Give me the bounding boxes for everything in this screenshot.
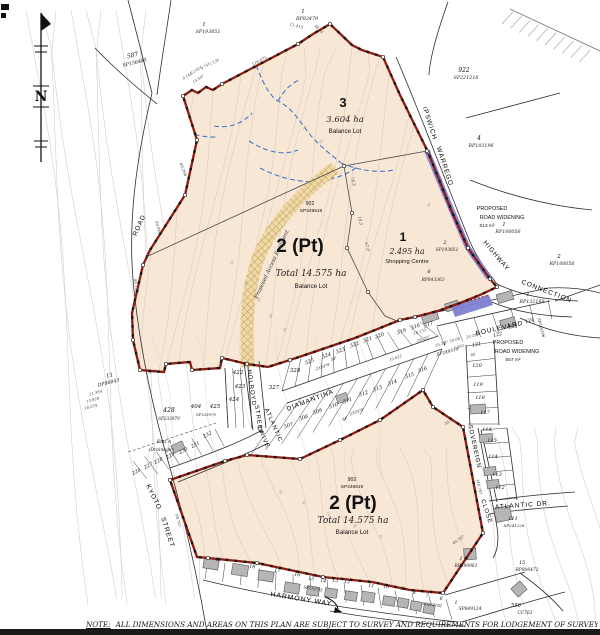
street-atlantic-dr: ATLANTIC DR. [495,500,551,511]
survey-mark [190,368,193,371]
map-label: 7 [425,593,430,599]
map-label: 1 [459,556,462,562]
lot-tick [467,375,496,377]
map-label: 49 [379,534,384,539]
map-label: SP233979 [196,412,216,417]
map-label: 122 [492,331,503,339]
lot-tick [223,563,225,582]
map-label: 1 [301,9,305,15]
map-label: 120 [472,363,482,369]
map-label: 115 [487,438,497,444]
bank-tick [511,16,522,28]
map-label: SP221216 [454,75,479,81]
lot3-area: 3.604 ha [326,115,364,125]
survey-mark [195,138,198,141]
survey-mark [245,362,248,365]
map-label: 14 [320,578,327,585]
map-label: 314 [387,379,398,388]
map-label: Balance Lot [329,128,362,135]
map-label: 308 [298,414,309,423]
map-label: 902 [348,477,357,483]
road-widening-2: PROPOSED [493,340,524,346]
street-harmony-way: HARMONY WAY [270,591,333,608]
map-label: 232 [201,430,213,440]
road-edge [128,0,152,93]
map-label: ROAD WIDENING [495,349,540,355]
map-label: 1 [526,292,529,298]
map-label: 58.064 [154,220,163,235]
survey-plan-map: N587SP1364451SP1938511RP92479922SP221216… [0,0,600,635]
map-label: 587 [126,51,139,61]
bank-tick [579,50,590,62]
map-label: 10.622 [388,353,403,362]
survey-mark [288,358,291,361]
road-edge [157,0,171,95]
lot2-lower-number: 2 (Pt) [329,493,377,514]
survey-mark [138,368,141,371]
survey-mark [461,425,464,428]
map-label: 6 [427,269,430,275]
map-label: RP103196 [467,143,493,149]
survey-mark [441,591,444,594]
survey-mark [381,55,384,58]
bank-tick [519,20,530,32]
map-label: 315 [404,372,415,381]
map-label: 112 [495,485,505,491]
house-footprint [496,290,514,303]
map-label: 323 [335,347,346,356]
note-text: ALL DIMENSIONS AND AREAS ON THIS PLAN AR… [116,620,598,629]
map-label: 322 [349,341,360,350]
lot-tick [466,358,495,361]
house-footprint [410,601,422,612]
survey-mark [342,164,345,167]
bank-tick [562,41,573,53]
bank-tick [571,46,582,58]
street-kyoto: KYOTO [144,483,162,511]
map-label: 15 [519,560,525,566]
map-label: Balance Lot [336,529,369,536]
map-label: 45 [279,490,284,495]
map-label: 312 [358,390,369,399]
survey-mark [328,22,331,25]
lot3-number: 3 [339,95,346,110]
survey-mark [206,556,209,559]
map-label: 47 [327,512,332,517]
map-label: 24.347 [433,339,449,348]
bank-tick [536,29,547,41]
map-label: 556 [511,603,522,609]
survey-mark [425,149,428,152]
lot2-upper-area: Total 14.575 ha [276,269,347,279]
survey-mark [495,285,498,288]
survey-mark [245,453,248,456]
survey-mark [338,438,341,441]
map-label: 328 [290,368,301,374]
road-widening-1: PROPOSED [477,206,508,212]
road-edge [507,428,517,500]
contour-line [71,10,127,604]
survey-mark [220,82,223,85]
map-label: 422 [232,370,244,376]
map-label: RP92479 [295,16,318,22]
map-label: 11.415 [289,21,304,29]
survey-mark [220,356,223,359]
survey-mark [431,405,434,408]
house-footprint [397,598,409,609]
map-label: 123 [507,323,518,331]
map-label: SP [330,355,337,362]
lot1-number: 1 [400,230,407,244]
map-label: 1 [455,601,458,606]
lot1-area: 2.495 ha [388,247,425,256]
road-edge [520,573,563,611]
map-label: 1 [202,22,206,28]
map-label: 557 m² [506,357,521,363]
north-label: N [35,89,48,105]
house-footprint [284,582,300,594]
survey-mark [398,318,401,321]
map-label: 19 [215,557,222,564]
contour-line [554,428,595,619]
survey-mark [164,362,167,365]
map-label: 11 [368,583,375,590]
map-label: 307 [283,421,295,430]
map-label: 46 [302,501,307,506]
survey-mark [141,263,144,266]
lot-tick [282,362,290,391]
map-label: 12 [344,579,351,586]
map-label: SP244206 [536,317,546,338]
note-prefix: NOTE: [86,620,111,629]
map-label: 48 [353,524,358,529]
north-arrow-scale-bar [1,4,51,162]
contour-line [52,10,122,597]
house-footprint [258,570,274,582]
survey-mark [413,315,416,318]
map-label: 316 [417,365,429,374]
map-label: 16 [294,572,301,579]
corner-glyph [1,4,9,10]
map-label: Balance Lot [295,283,328,290]
map-label: 320 [374,331,386,340]
map-label: 7.136 [209,57,220,66]
map-label: RP843363 [420,278,444,283]
map-label: 321 [362,336,373,345]
map-label: 6 [439,596,443,602]
survey-mark [481,531,484,534]
map-label: 114 [488,454,498,460]
map-label: 425 [209,404,221,410]
contour-line [575,428,600,621]
map-label: 15 [308,576,315,583]
lot-tick [446,599,452,620]
map-label: 9 [400,586,404,592]
survey-mark [466,246,469,249]
contour-line [41,10,117,599]
house-footprint [361,591,375,603]
survey-mark [350,211,353,214]
map-label: 18.234 [84,402,99,411]
map-label: SP249519 [300,208,323,214]
map-label: 8 [412,590,416,596]
map-label: (Drainage) [148,446,173,453]
survey-mark [298,457,301,460]
map-label: 69.266 [178,162,188,177]
map-label: STREET [159,516,175,548]
survey-mark [421,388,424,391]
map-label: 902 [306,201,315,207]
map-label: SP193851 [436,248,459,253]
map-label: RP190961 [453,564,477,569]
survey-mark [181,94,184,97]
map-label: 327 [269,385,280,391]
map-label: RP806472 [514,568,538,573]
map-label: 121 [471,341,482,349]
map-label: 2 [442,240,446,246]
road-edge [466,93,560,118]
map-label: RP100056 [548,261,574,267]
map-label: SP [471,353,476,357]
survey-mark [345,246,348,249]
house-footprint [324,588,337,599]
map-label: 1 [502,222,506,228]
map-label: 116 [482,427,492,433]
map-label: 404 [190,404,202,410]
map-label: 15.507 [192,74,205,84]
map-label: 613 m² [480,223,495,229]
map-label: HIGHWAY [481,239,510,272]
house-footprint [344,591,357,602]
lot-tick [215,429,224,446]
house-footprint [382,596,395,607]
map-label: CC763 [517,611,532,616]
corner-glyph [1,13,6,18]
survey-mark [168,478,171,481]
map-label: 3.583 [453,343,465,351]
map-label: 233979 [348,407,365,417]
map-label: SP136445 [122,57,148,69]
lot-tick [378,588,381,608]
lot1-use: Shopping Centre [385,259,429,265]
map-label: RP100056 [494,229,520,235]
survey-mark [378,418,381,421]
map-label: 319 [396,327,408,336]
easement-a-label: Emt A [156,439,172,445]
bank-tick [502,12,513,24]
survey-mark [131,338,134,341]
map-label: 111 [508,516,518,522]
bank-line [510,9,600,51]
road-edge [466,345,470,425]
map-label: ROAD WIDENING [480,215,525,221]
map-label: 309 [312,407,324,416]
lot-tick [548,300,552,319]
plan-note: NOTE:ALL DIMENSIONS AND AREAS ON THIS PL… [86,620,598,629]
map-label: SP193851 [196,29,221,35]
map-label: 10 [383,584,390,591]
map-label: 325 [304,358,315,367]
map-label: 30.0 [147,368,157,375]
map-label: 4 [476,135,481,142]
map-label: 922 [458,67,470,74]
survey-mark [223,459,226,462]
map-label: 11 [106,372,114,380]
map-label: 20.387 [465,331,481,339]
survey-mark [296,42,299,45]
map-label: 26.08 [448,336,461,344]
map-label: 424 [228,397,240,403]
map-label: 423 [234,384,246,390]
map-label: 148.787 [476,479,484,496]
house-footprint [231,563,249,576]
road-edge [429,2,448,75]
bank-tick [554,37,565,49]
map-label: 117 [480,410,490,416]
map-label: 227 [142,461,155,472]
survey-mark [366,290,369,293]
house-footprint [511,581,527,597]
map-label: 26.297 [415,334,431,343]
map-label: SP849124 [459,607,482,612]
survey-plan-page: N587SP1364451SP1938511RP92479922SP221216… [0,0,600,635]
map-label: 2 [556,254,561,260]
map-label: 17 [274,568,282,575]
map-label: SP233979 [158,416,180,421]
map-label: 13 [332,578,339,585]
map-label: 428 [162,407,175,414]
map-label: 226 [130,467,142,477]
survey-mark [183,193,186,196]
bank-tick [528,25,539,37]
bottom-bar [0,629,600,635]
map-label: 118 [475,395,485,401]
lot-tick [225,369,228,428]
map-label: 18 [249,564,256,571]
survey-mark [255,561,258,564]
bank-hatching [502,9,600,62]
map-label: SP249519 [341,484,364,490]
survey-mark [488,277,491,280]
lot-tick [467,391,497,393]
map-label: 119 [473,382,483,388]
map-label: 113 [492,472,502,478]
bank-tick [545,33,556,45]
map-label: RP132169 [518,299,544,305]
map-label: SP241228 [504,523,525,528]
